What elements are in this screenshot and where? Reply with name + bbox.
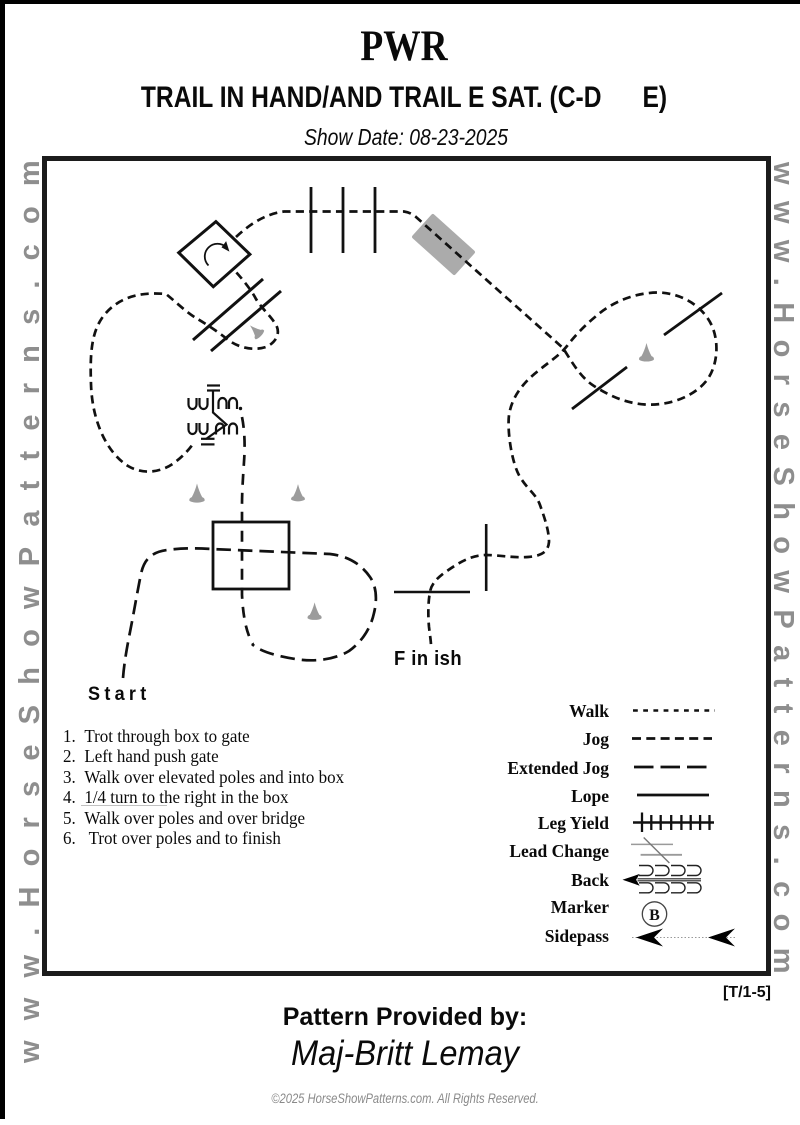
svg-text:B: B [649, 907, 660, 924]
